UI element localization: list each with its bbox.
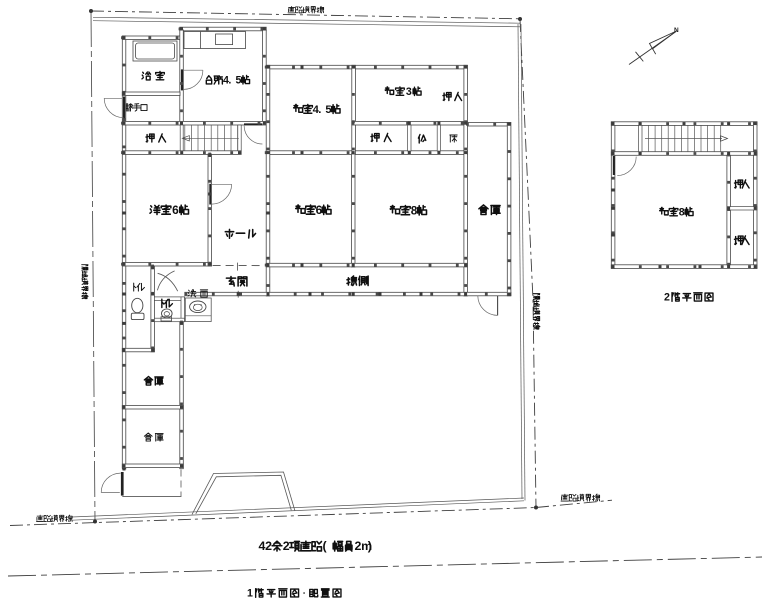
- svg-text:8: 8: [411, 203, 418, 217]
- svg-text:2: 2: [283, 539, 290, 553]
- svg-text:6: 6: [172, 203, 179, 217]
- svg-text:N: N: [674, 27, 679, 34]
- svg-text:3: 3: [406, 86, 412, 98]
- svg-text:8: 8: [679, 206, 685, 218]
- svg-text:1: 1: [247, 587, 253, 599]
- svg-text:6: 6: [316, 203, 323, 217]
- svg-text:2: 2: [265, 539, 272, 553]
- svg-text:): ): [368, 539, 372, 553]
- svg-text:5: 5: [236, 74, 242, 86]
- svg-text:5: 5: [325, 104, 331, 116]
- svg-text:2: 2: [664, 291, 670, 303]
- svg-text:.: .: [318, 104, 321, 116]
- svg-text:.: .: [228, 74, 231, 86]
